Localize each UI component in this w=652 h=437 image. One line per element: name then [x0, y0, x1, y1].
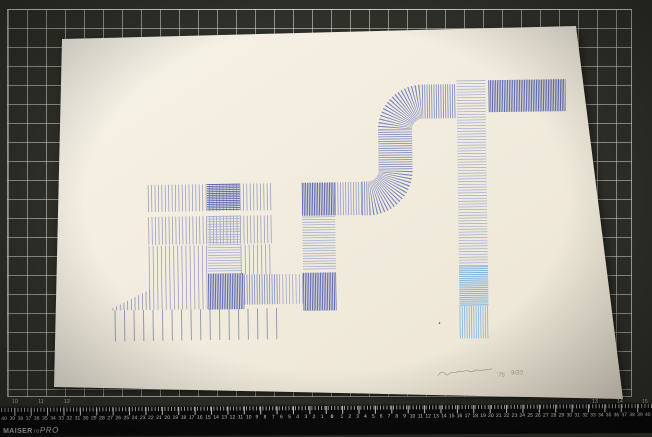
- ruler-number: 22: [147, 415, 155, 421]
- ruler-number: 26: [114, 415, 122, 421]
- ruler-number: 22: [503, 413, 511, 419]
- ruler-number: 35: [605, 412, 613, 418]
- mat-scale-number: 12: [64, 399, 70, 405]
- ruler-number: 8: [261, 414, 269, 420]
- ruler-number: 6: [377, 414, 385, 420]
- right-column-sky-horizontal-hatch: [473, 266, 474, 305]
- ruler-number: 40: [0, 416, 8, 422]
- ruler-number: 9: [401, 413, 409, 419]
- ruler-number: 13: [220, 415, 228, 421]
- ruler-number: 33: [589, 412, 597, 418]
- ruler-number: 21: [495, 413, 503, 419]
- ruler-number: 29: [90, 415, 98, 421]
- ruler-number: 19: [479, 413, 487, 419]
- signature-edition: 9/20: [511, 370, 523, 376]
- ruler-number: 1: [338, 414, 346, 420]
- ruler-number: 4: [361, 414, 369, 420]
- ruler-number: 2: [346, 414, 354, 420]
- ruler-number: 17: [188, 415, 196, 421]
- brand-suffix: PRO: [40, 426, 59, 435]
- ruler-number: 36: [33, 416, 41, 422]
- ruler-number: 7: [269, 414, 277, 420]
- ruler-number: 37: [24, 416, 32, 422]
- ruler-number: 7: [385, 414, 393, 420]
- ruler-number: 5: [369, 414, 377, 420]
- ruler-zero-mark: 0: [326, 414, 338, 420]
- ruler-number: 8: [393, 414, 401, 420]
- ruler-number: 30: [565, 412, 573, 418]
- ruler-number: 15: [204, 415, 212, 421]
- ruler-number: 24: [518, 413, 526, 419]
- ruler-number: 30: [82, 415, 90, 421]
- brand-name: MAISER: [3, 428, 33, 435]
- ruler-number: 32: [65, 416, 73, 422]
- ruler-number: 36: [612, 412, 620, 418]
- ruler-number: 28: [98, 415, 106, 421]
- small-ink-dot: [439, 323, 440, 324]
- ruler-number: 27: [542, 413, 550, 419]
- ruler-numbers-right: 1234567891011121314151617181920212223242…: [338, 412, 652, 420]
- ruler-number: 31: [73, 415, 81, 421]
- ruler-number: 12: [228, 415, 236, 421]
- ruler-number: 3: [302, 414, 310, 420]
- ruler-number: 12: [424, 413, 432, 419]
- signature-year: '75: [497, 373, 506, 379]
- ruler-number: 37: [620, 412, 628, 418]
- ruler-number: 17: [463, 413, 471, 419]
- mat-scale-number: 10: [12, 399, 18, 405]
- ruler-number: 39: [636, 412, 644, 418]
- ruler-brand-logo: MAISERrePRO: [3, 426, 59, 435]
- ruler-number: 13: [432, 413, 440, 419]
- ruler-number: 25: [526, 413, 534, 419]
- ruler-number: 11: [416, 413, 424, 419]
- photograph-of-artwork-on-cutting-mat: { "mat": { "base_color": "#31312b", "gri…: [0, 0, 652, 433]
- artwork-layer: '75 9/20: [0, 0, 652, 433]
- ruler-number: 38: [16, 416, 24, 422]
- ruler-number: 10: [409, 413, 417, 419]
- ruler-number: 15: [448, 413, 456, 419]
- ruler-number: 3: [354, 414, 362, 420]
- ruler-number: 29: [558, 413, 566, 419]
- ruler-number: 23: [511, 413, 519, 419]
- ruler-number: 11: [236, 414, 244, 420]
- ruler-number: 16: [456, 413, 464, 419]
- mat-scale-number: 11: [38, 399, 44, 405]
- ruler-number: 19: [171, 415, 179, 421]
- ruler-number: 39: [8, 416, 16, 422]
- ruler-number: 6: [277, 414, 285, 420]
- ruler-number: 25: [122, 415, 130, 421]
- ruler-numbers-left: 4039383736353433323130292827262524232221…: [0, 414, 326, 422]
- ruler-number: 24: [130, 415, 138, 421]
- ruler-number: 32: [581, 412, 589, 418]
- ruler-number: 35: [41, 416, 49, 422]
- ruler-number: 27: [106, 415, 114, 421]
- ruler-number: 23: [139, 415, 147, 421]
- ruler-number: 31: [573, 412, 581, 418]
- ruler-number: 20: [487, 413, 495, 419]
- ruler-number: 10: [245, 414, 253, 420]
- ruler-number: 18: [179, 415, 187, 421]
- ruler-number: 21: [155, 415, 163, 421]
- ruler-number: 9: [253, 414, 261, 420]
- ruler-number: 16: [196, 415, 204, 421]
- ruler-number: 34: [597, 412, 605, 418]
- ruler-number: 34: [49, 416, 57, 422]
- ruler-number: 2: [310, 414, 318, 420]
- ruler-number: 5: [285, 414, 293, 420]
- brand-mid: re: [34, 429, 40, 435]
- ruler-number: 33: [57, 416, 65, 422]
- ruler-number: 18: [471, 413, 479, 419]
- ruler-number: 20: [163, 415, 171, 421]
- ruler-number: 4: [294, 414, 302, 420]
- centering-ruler: 4039383736353433323130292827262524232221…: [0, 404, 652, 437]
- ruler-number: 26: [534, 413, 542, 419]
- ruler-number: 28: [550, 413, 558, 419]
- ruler-number: 14: [212, 415, 220, 421]
- ruler-number: 38: [628, 412, 636, 418]
- ruler-number: 40: [644, 412, 652, 418]
- mat-scale-numbers-left: 101112: [12, 399, 70, 405]
- ruler-number: 14: [440, 413, 448, 419]
